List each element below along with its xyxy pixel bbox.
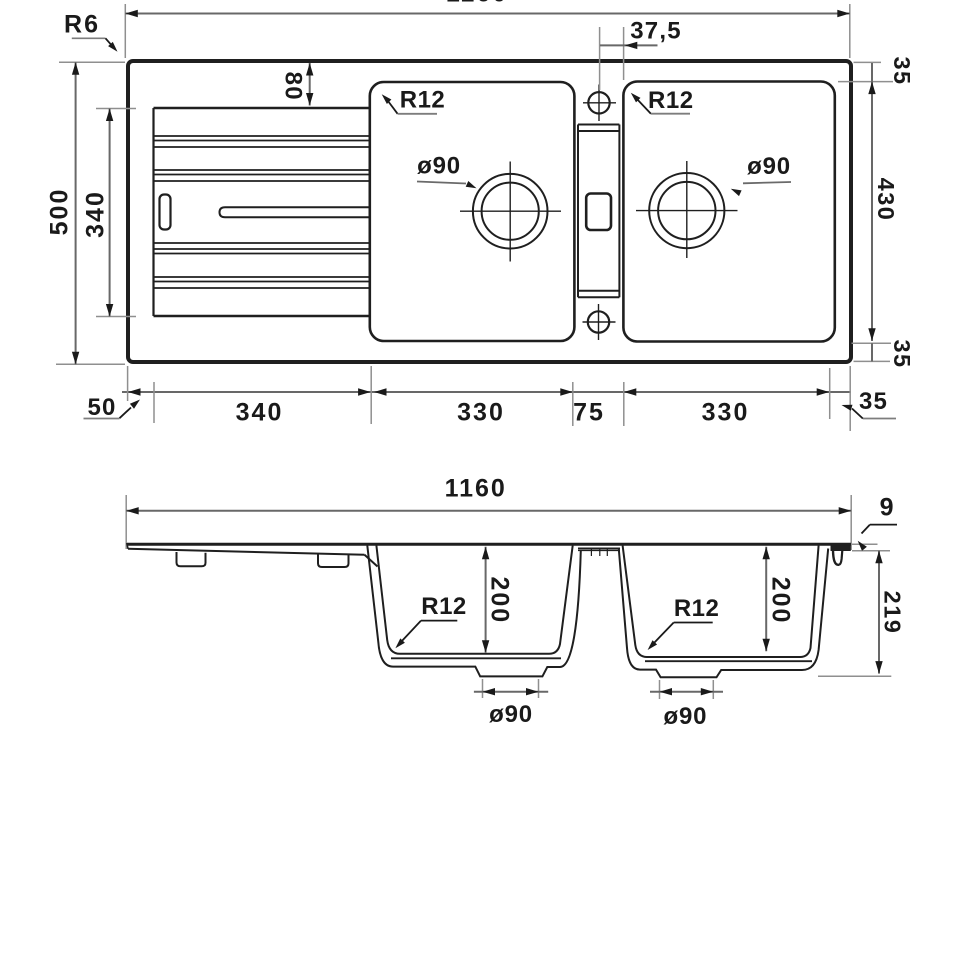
svg-text:R12: R12 [648,87,694,114]
svg-text:80: 80 [279,72,306,101]
svg-text:R12: R12 [674,595,720,622]
svg-text:200: 200 [486,576,514,624]
svg-text:430: 430 [873,178,899,222]
svg-text:1160: 1160 [446,0,508,8]
svg-text:ø90: ø90 [747,153,791,180]
svg-text:340: 340 [236,399,284,427]
svg-text:35: 35 [859,388,888,415]
svg-text:330: 330 [457,398,505,426]
svg-text:340: 340 [82,190,110,238]
svg-text:35: 35 [889,339,915,368]
svg-text:R12: R12 [421,593,467,620]
svg-text:330: 330 [702,398,750,426]
svg-text:ø90: ø90 [489,701,533,728]
svg-text:R6: R6 [64,11,100,39]
svg-text:ø90: ø90 [417,152,461,179]
svg-text:50: 50 [87,394,116,421]
svg-text:1160: 1160 [445,475,507,503]
svg-text:500: 500 [46,188,74,236]
svg-text:35: 35 [889,56,915,85]
svg-text:37,5: 37,5 [630,18,682,45]
svg-text:75: 75 [573,398,605,426]
svg-text:9: 9 [880,493,896,521]
svg-text:200: 200 [766,577,794,625]
svg-text:219: 219 [879,591,905,635]
svg-text:R12: R12 [400,86,446,113]
svg-text:ø90: ø90 [664,703,708,730]
